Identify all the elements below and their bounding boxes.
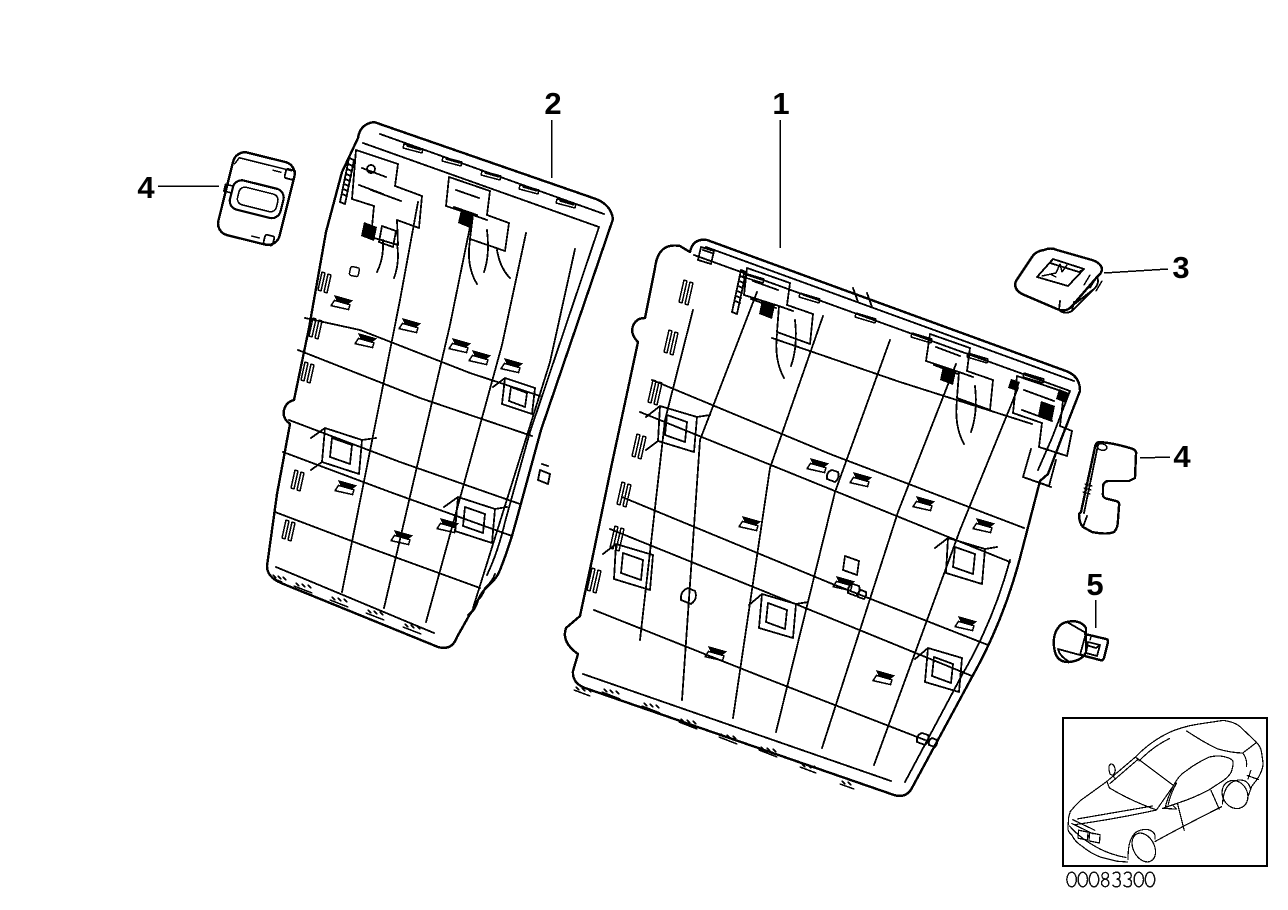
svg-text:2: 2 [544, 86, 561, 121]
svg-text:4: 4 [137, 170, 155, 205]
svg-text:1: 1 [772, 86, 789, 121]
svg-text:3: 3 [1172, 250, 1189, 285]
svg-text:4: 4 [1173, 439, 1191, 474]
svg-text:5: 5 [1086, 567, 1103, 602]
